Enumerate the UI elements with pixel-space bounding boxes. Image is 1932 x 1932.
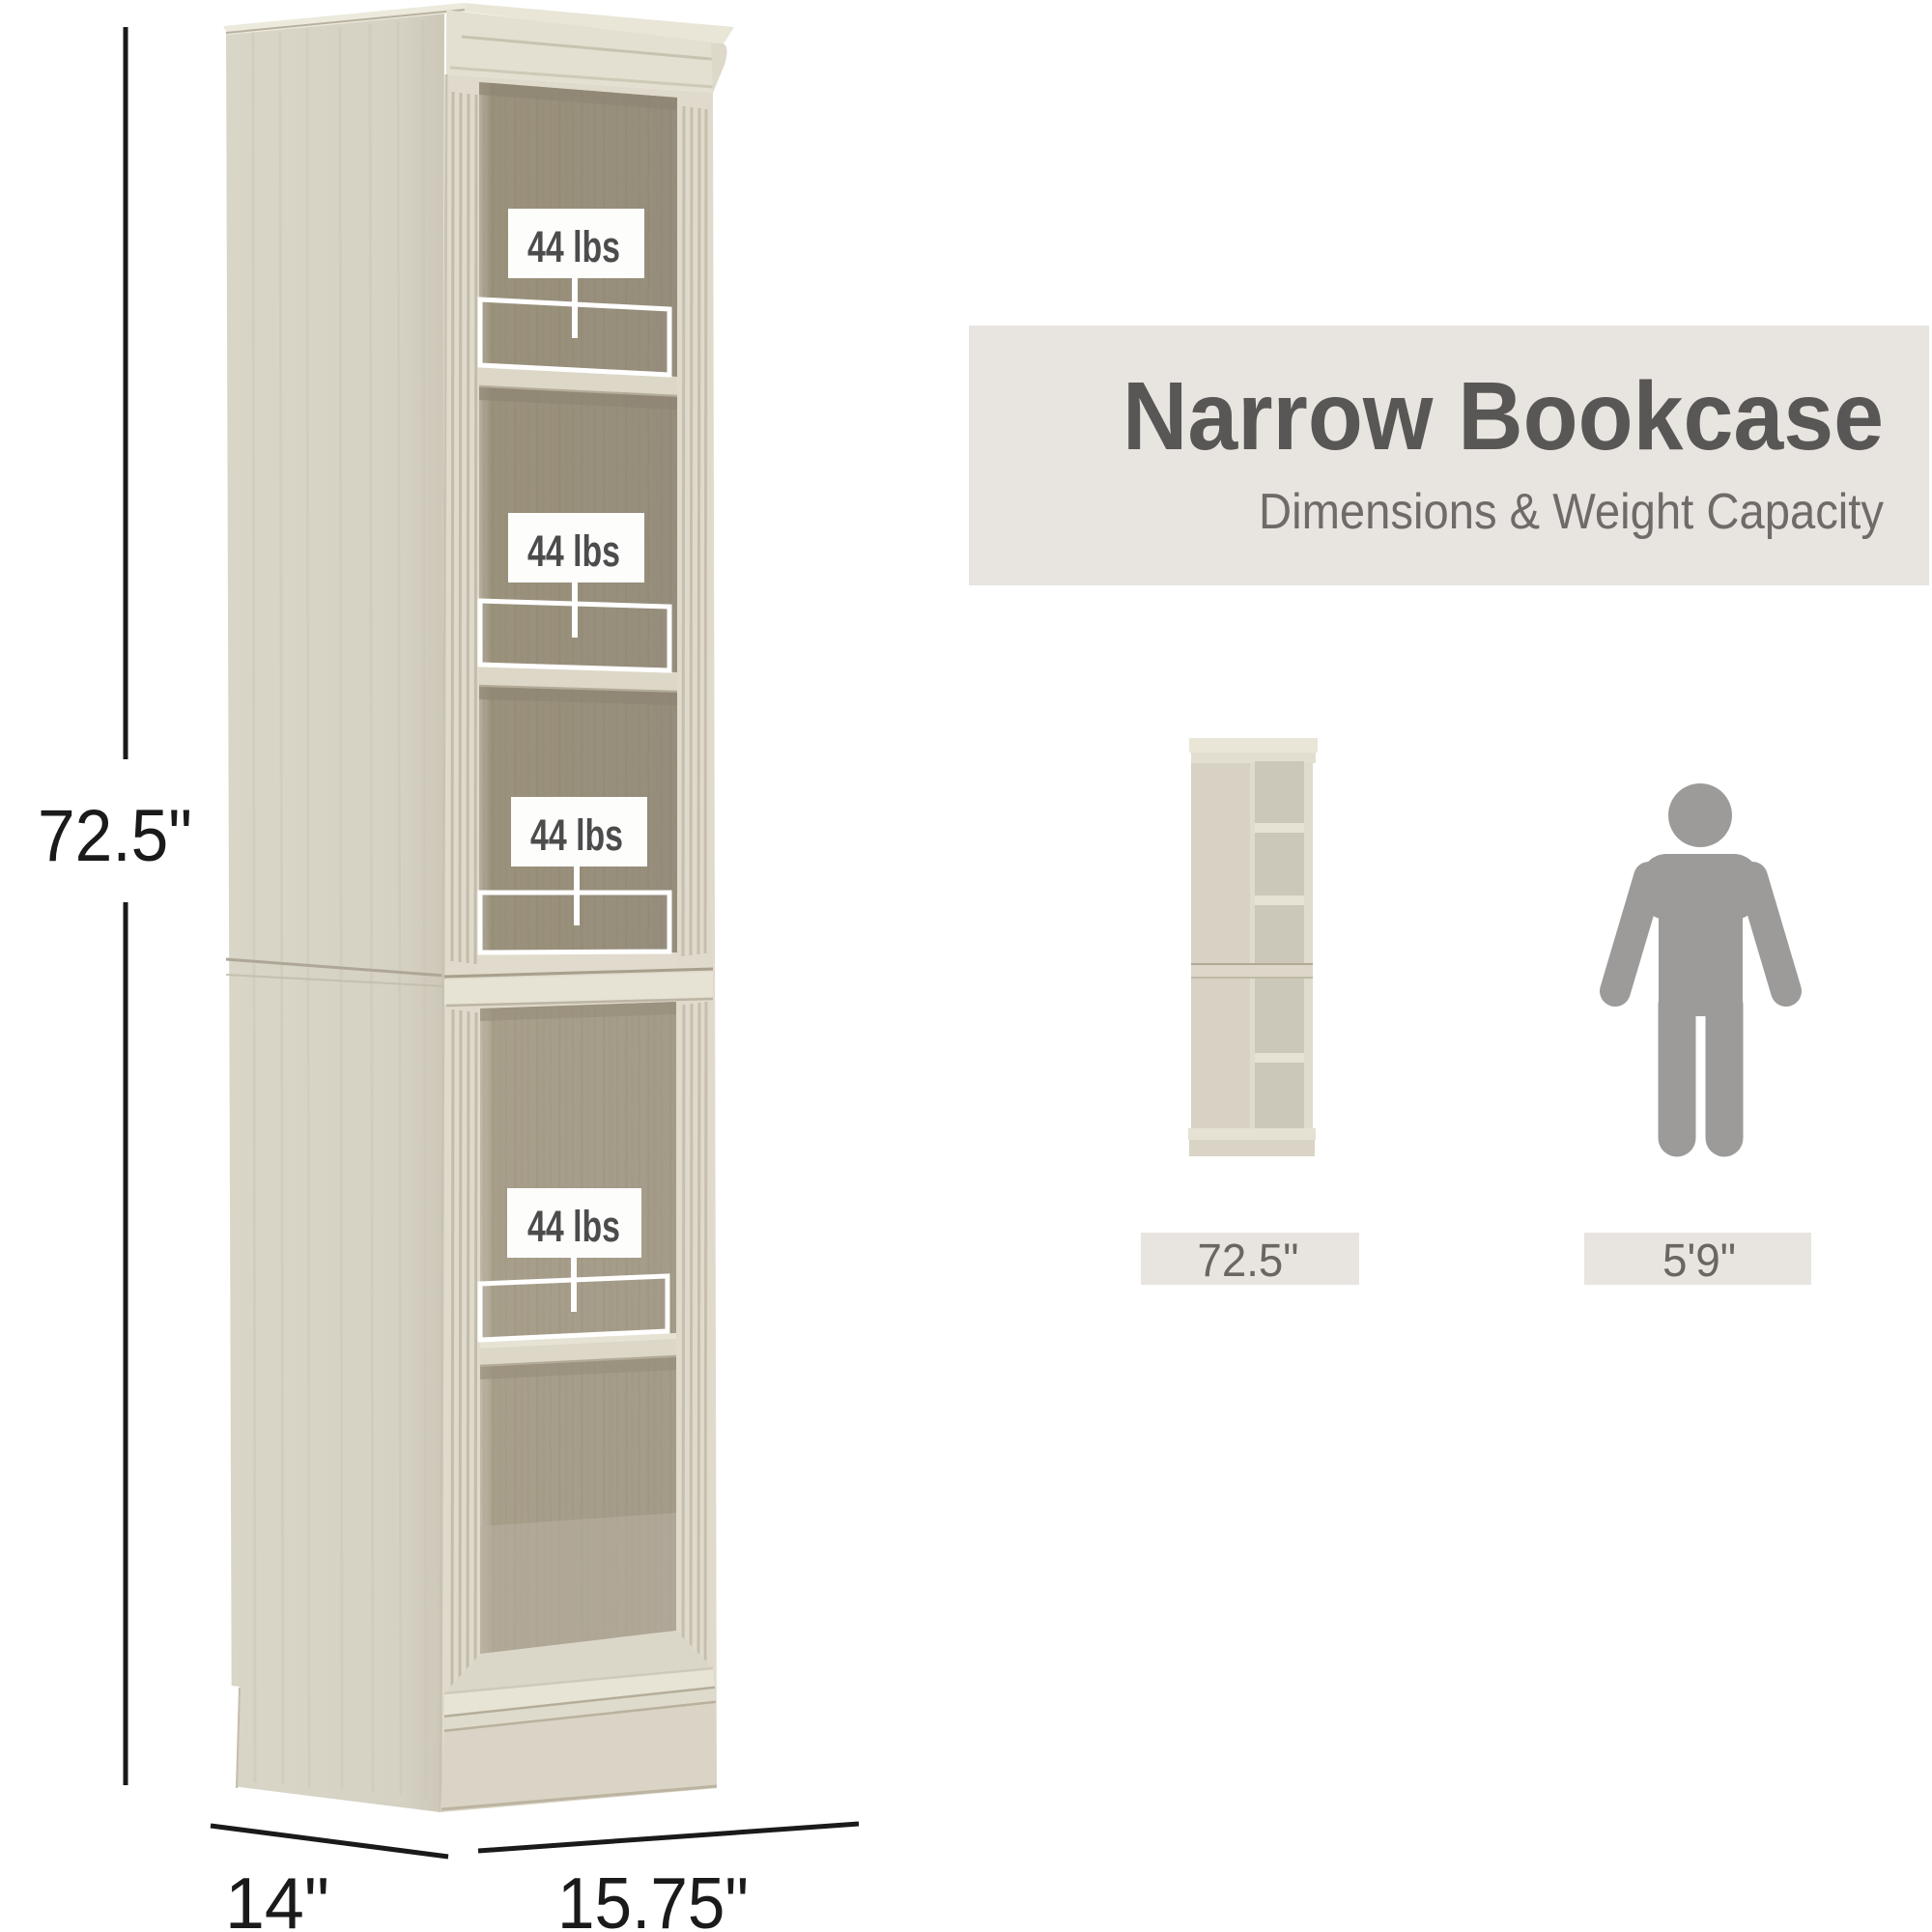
svg-text:44 lbs: 44 lbs	[527, 526, 620, 576]
svg-text:72.5": 72.5"	[38, 795, 192, 877]
svg-text:Dimensions & Weight Capacity: Dimensions & Weight Capacity	[1259, 484, 1884, 540]
svg-text:44 lbs: 44 lbs	[530, 810, 623, 860]
svg-text:Narrow Bookcase: Narrow Bookcase	[1122, 362, 1884, 470]
svg-text:44 lbs: 44 lbs	[527, 1202, 620, 1251]
svg-text:44 lbs: 44 lbs	[527, 222, 620, 271]
svg-text:14": 14"	[225, 1862, 329, 1932]
svg-text:72.5": 72.5"	[1198, 1236, 1299, 1287]
svg-text:15.75": 15.75"	[557, 1862, 749, 1932]
svg-text:5'9": 5'9"	[1662, 1236, 1736, 1287]
